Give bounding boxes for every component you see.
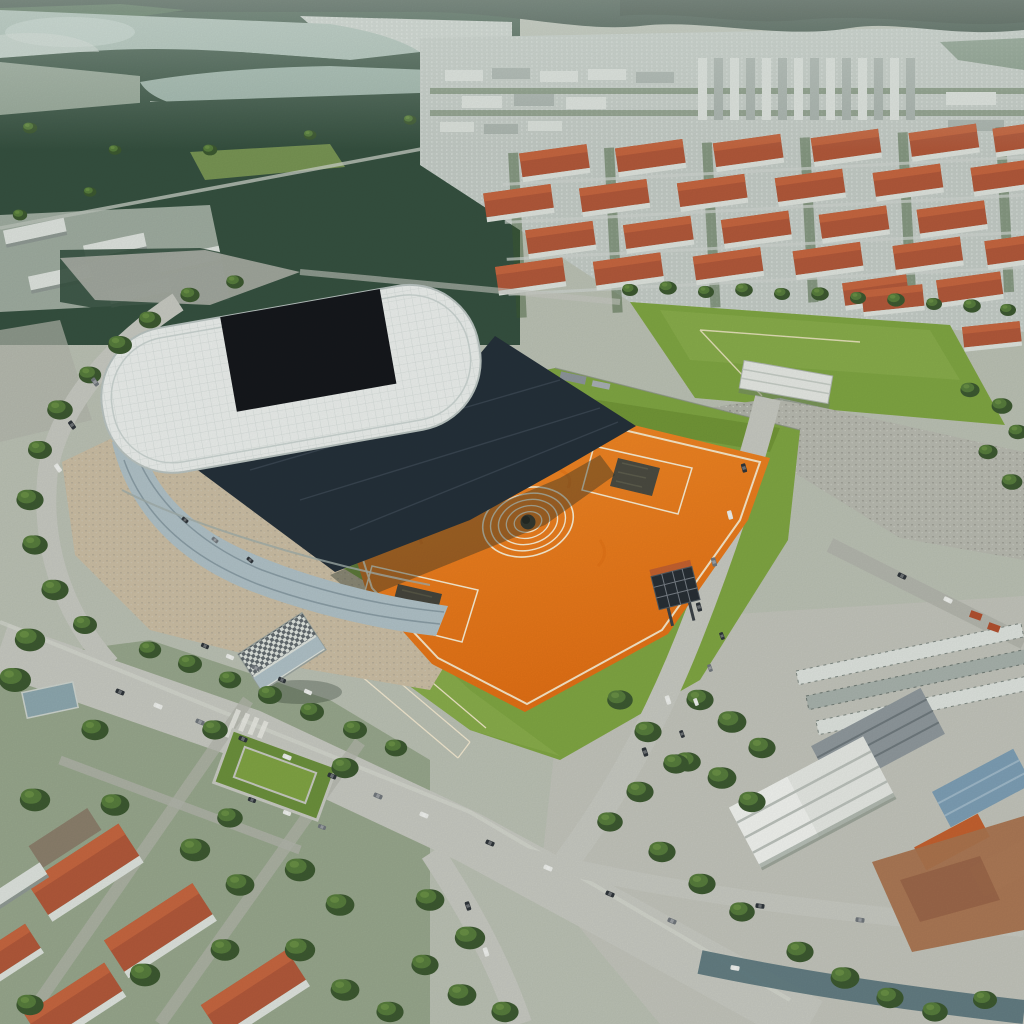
film-grain xyxy=(0,0,1024,1024)
aerial-photo: Aerial view of a stadium complex with an… xyxy=(0,0,1024,1024)
aerial-photo-canvas: Aerial view of a stadium complex with an… xyxy=(0,0,1024,1024)
